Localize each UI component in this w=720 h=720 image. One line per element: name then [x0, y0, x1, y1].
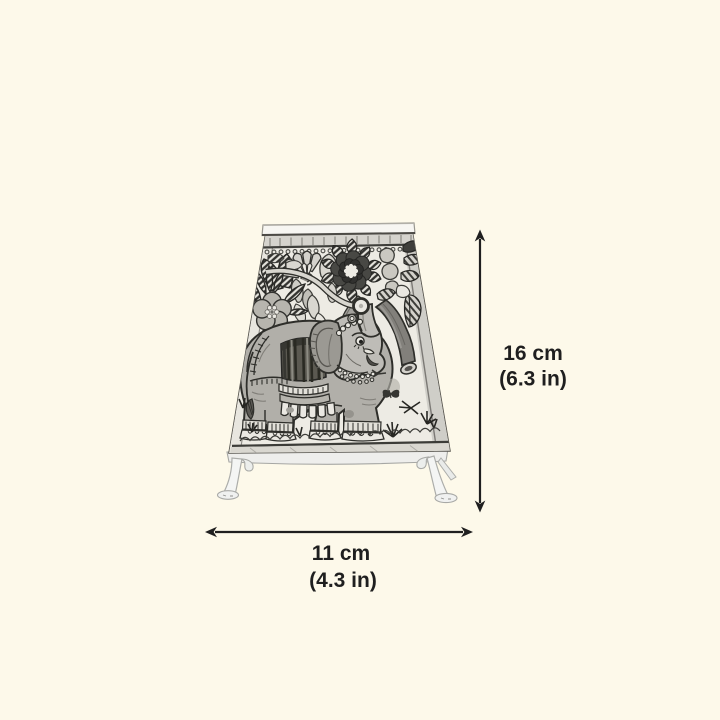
svg-text:11 cm: 11 cm: [312, 542, 370, 565]
svg-text:16 cm: 16 cm: [503, 342, 563, 365]
svg-text:(4.3 in): (4.3 in): [309, 569, 377, 592]
svg-text:(6.3 in): (6.3 in): [499, 368, 567, 391]
